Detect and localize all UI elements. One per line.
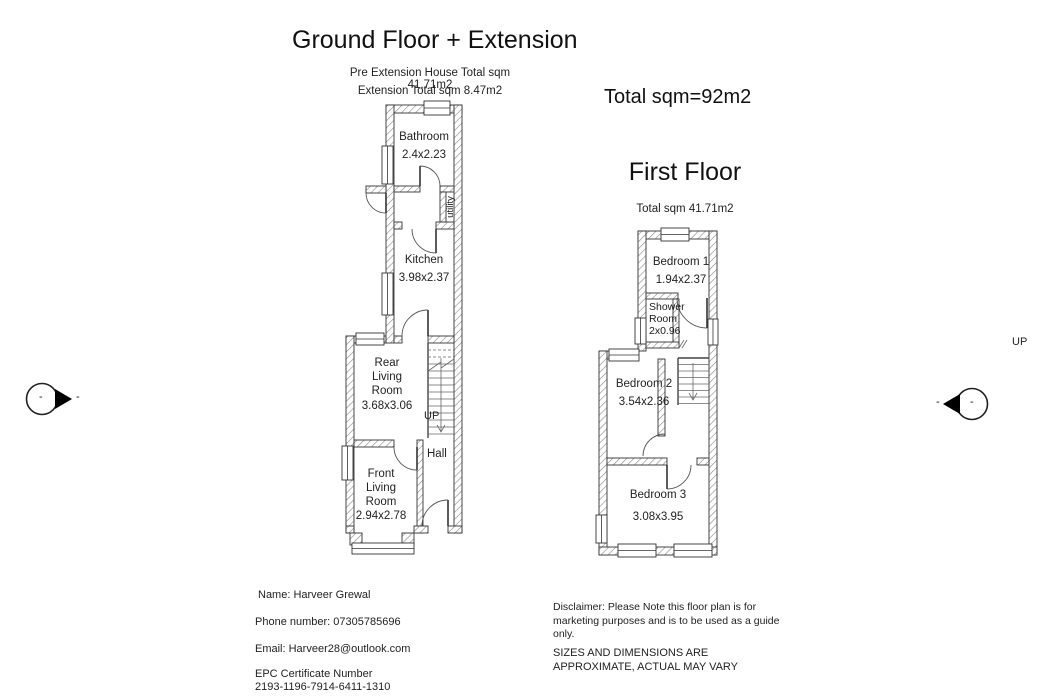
room-name: Shower Room [649, 301, 685, 325]
ground-floor-title: Ground Floor + Extension [292, 26, 622, 55]
room-name: Kitchen [384, 253, 464, 267]
room-label-bedroom3: Bedroom 3 3.08x3.95 [616, 488, 700, 524]
room-dims: 3.54x2.36 [604, 395, 684, 409]
room-dims-front-living: 2.94x2.78 [336, 509, 426, 523]
room-label-bedroom2: Bedroom 2 3.54x2.36 [604, 377, 684, 409]
room-label-utility: utility [432, 189, 468, 225]
room-dims: 3.98x2.37 [384, 271, 464, 285]
room-name: Bedroom 1 [642, 255, 720, 269]
room-label-bedroom1: Bedroom 1 1.94x2.37 [642, 255, 720, 287]
room-label-kitchen: Kitchen 3.98x2.37 [384, 253, 464, 285]
room-dims: 2x0.96 [649, 325, 681, 337]
room-name: Bathroom [384, 130, 464, 144]
room-dims: 1.94x2.37 [642, 273, 720, 287]
epc-certificate: EPC Certificate Number 2193-1196-7914-64… [255, 668, 390, 694]
room-name: Front Living Room [357, 467, 405, 509]
ground-floor-stairs [428, 343, 454, 438]
room-dims-rear-living: 3.68x3.06 [342, 399, 432, 413]
room-name: utility [445, 196, 456, 218]
stairs-up-label: UP [424, 410, 439, 422]
overall-total: Total sqm=92m2 [604, 86, 751, 109]
first-floor-up-label: UP [1012, 336, 1027, 348]
marker-outer-dash: - [936, 396, 940, 408]
room-name: Rear Living Room [363, 356, 411, 398]
room-label-front-living: Front Living Room [357, 467, 405, 509]
contact-name: Name: Harveer Grewal [258, 589, 370, 602]
marker-outer-dash: - [76, 391, 80, 403]
room-label-bathroom: Bathroom 2.4x2.23 [384, 130, 464, 162]
contact-phone: Phone number: 07305785696 [255, 616, 401, 629]
epc-line2: 2193-1196-7914-6411-1310 [255, 681, 390, 694]
room-label-hall: Hall [427, 448, 447, 460]
room-name: Bedroom 2 [604, 377, 684, 391]
extension-total: Extension Total sqm 8.47m2 [330, 85, 530, 97]
first-floor-title: First Floor [610, 158, 760, 187]
epc-line1: EPC Certificate Number [255, 668, 390, 681]
contact-email: Email: Harveer28@outlook.com [255, 643, 410, 656]
room-dims: 3.68x3.06 [342, 399, 432, 413]
marker-inner-dash: - [970, 396, 974, 408]
floor-plan-page: { "header": { "ground_title": "Ground Fl… [0, 0, 1056, 696]
sizes-disclaimer-text: SIZES AND DIMENSIONS ARE APPROXIMATE, AC… [553, 647, 758, 674]
room-dims: 2.94x2.78 [336, 509, 426, 523]
room-name: Bedroom 3 [616, 488, 700, 502]
first-floor-total: Total sqm 41.71m2 [610, 203, 760, 215]
room-dims: 2.4x2.23 [384, 148, 464, 162]
section-marker-right: - - [930, 381, 992, 427]
marker-inner-dash: - [39, 391, 43, 403]
disclaimer-text: Disclaimer: Please Note this floor plan … [553, 601, 781, 642]
room-label-shower: Shower Room 2x0.96 [649, 301, 687, 337]
section-marker-left: - - [25, 376, 87, 422]
room-dims: 3.08x3.95 [616, 510, 700, 524]
room-label-rear-living: Rear Living Room [363, 356, 411, 398]
